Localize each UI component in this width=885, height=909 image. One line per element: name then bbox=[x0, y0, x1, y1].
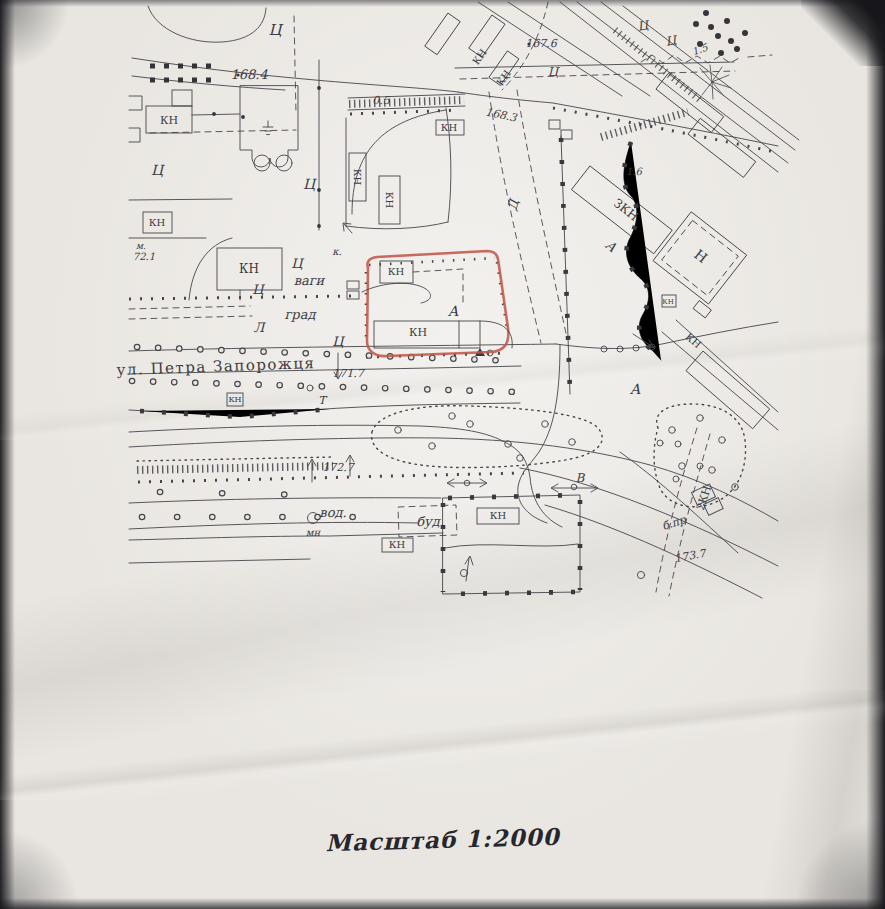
map-label: В bbox=[576, 472, 585, 484]
map-label: КН bbox=[662, 299, 674, 306]
map-label: КН bbox=[441, 123, 457, 133]
map-label: КН bbox=[384, 192, 394, 208]
map-label: Ц bbox=[332, 335, 343, 348]
photo-of-map: ЦЦЦЦЦЦЦЦЦАААЛДНЗКН2КНКНКНКНКНКНКНКНКНКНК… bbox=[0, 0, 885, 909]
map-label: КН bbox=[239, 263, 259, 275]
map-label: Т bbox=[318, 395, 325, 406]
map-label: Ц bbox=[548, 66, 558, 78]
map-label: Ц bbox=[665, 34, 677, 48]
map-area: ЦЦЦЦЦЦЦЦЦАААЛДНЗКН2КНКНКНКНКНКНКНКНКНКНК… bbox=[0, 0, 885, 909]
map-label: 172.7 bbox=[322, 462, 354, 473]
map-label: КН bbox=[388, 267, 404, 277]
map-drawing bbox=[0, 0, 885, 909]
map-label: КН bbox=[352, 169, 362, 185]
map-label: Ц bbox=[291, 257, 302, 270]
map-label: мн bbox=[306, 528, 320, 538]
map-label: КН bbox=[149, 218, 165, 228]
map-label: КН bbox=[490, 511, 506, 521]
map-label: КН bbox=[389, 540, 405, 550]
map-label: ваги bbox=[294, 274, 325, 287]
map-label: Ц bbox=[252, 283, 263, 296]
hatch-layer bbox=[137, 30, 700, 470]
map-label: А bbox=[448, 304, 459, 318]
map-label: 0.5 bbox=[372, 95, 390, 106]
map-label: м. bbox=[136, 242, 146, 251]
map-label: 72.1 bbox=[133, 252, 155, 262]
map-label: КН bbox=[160, 115, 178, 126]
map-label: 1.6 bbox=[626, 167, 642, 177]
map-label: КН bbox=[228, 396, 241, 404]
map-label: буд. bbox=[416, 515, 444, 528]
map-label: 168.4 bbox=[230, 68, 267, 81]
parcel-highlight bbox=[362, 251, 512, 356]
map-label: 171.7 bbox=[332, 368, 364, 379]
fence-layer bbox=[140, 66, 661, 594]
map-label: Ц bbox=[303, 177, 315, 191]
map-label: Ц bbox=[637, 19, 649, 33]
map-label: вод. bbox=[319, 506, 346, 519]
map-label: 167.6 bbox=[525, 38, 557, 49]
map-label: КН bbox=[409, 327, 427, 338]
map-label: А bbox=[630, 382, 641, 396]
map-label: Ц bbox=[151, 163, 163, 177]
map-label: град bbox=[285, 308, 316, 321]
map-label: Л bbox=[254, 321, 265, 334]
map-label: Ц bbox=[268, 23, 281, 38]
map-label: к. bbox=[332, 247, 341, 257]
